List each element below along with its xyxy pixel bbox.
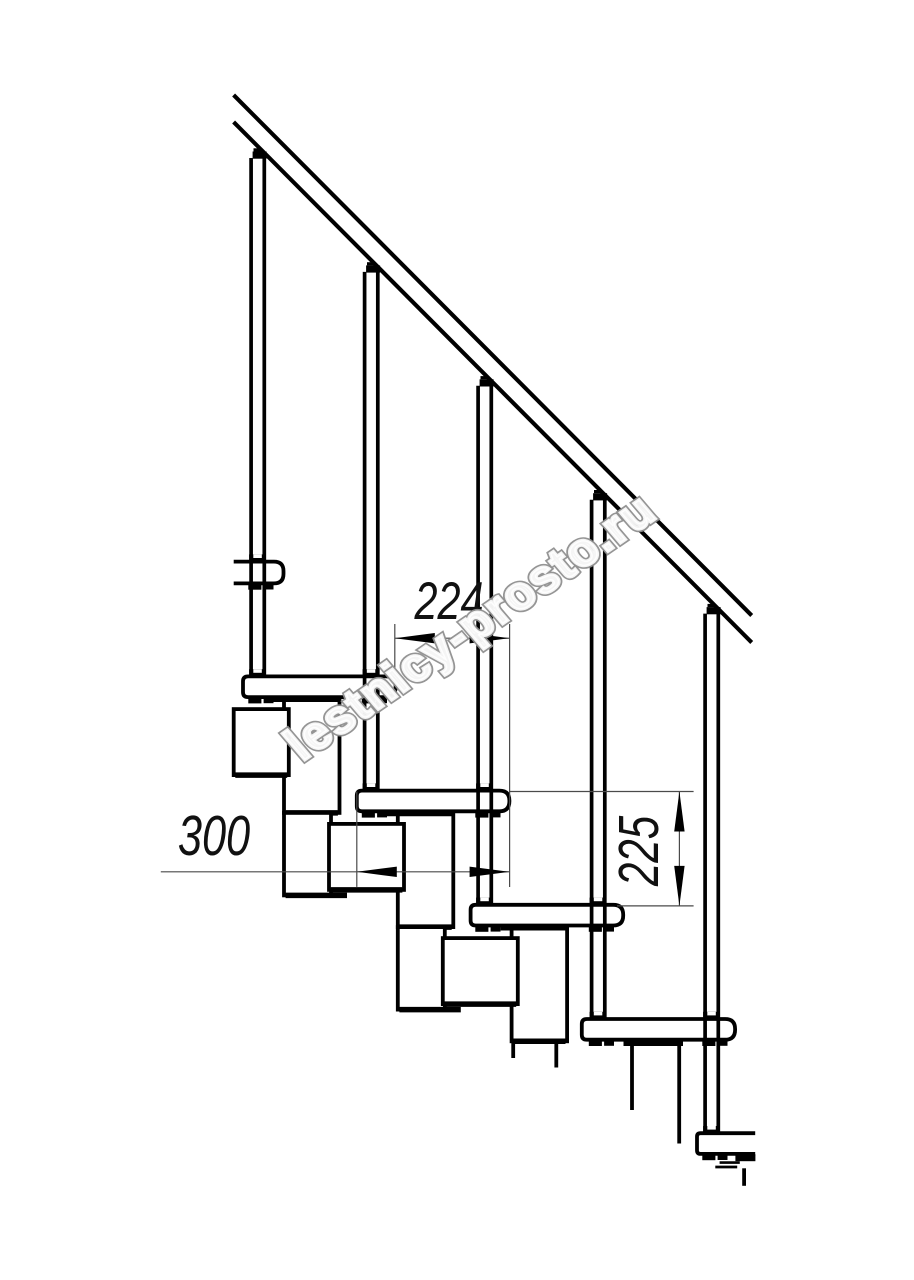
svg-text:300: 300 [178, 803, 250, 867]
svg-text:225: 225 [607, 816, 671, 887]
